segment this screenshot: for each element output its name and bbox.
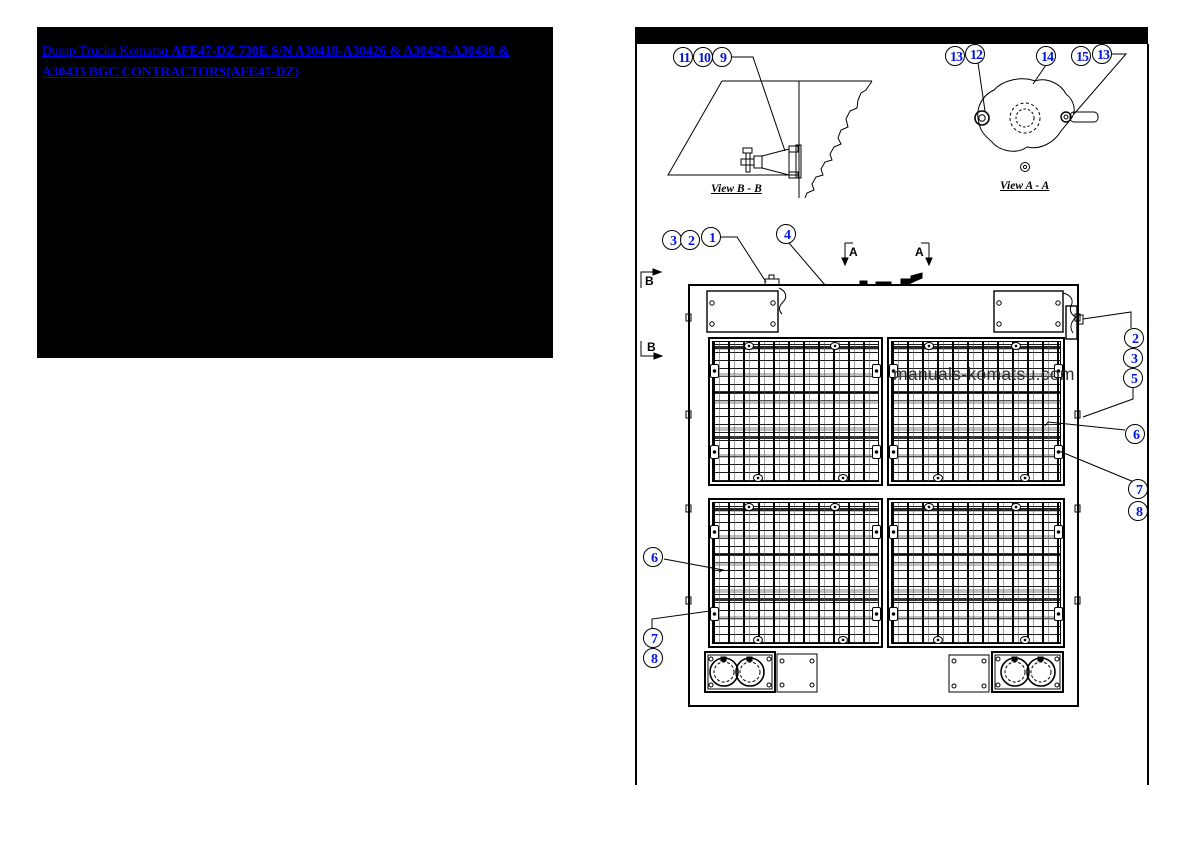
- panel-clip: [1054, 525, 1063, 539]
- callout-13: 13: [1092, 44, 1112, 64]
- panel-clip: [710, 607, 719, 621]
- core-panel-bottom-right: [887, 498, 1065, 648]
- panel-clip: [1054, 607, 1063, 621]
- callout-5: 5: [1123, 368, 1143, 388]
- callout-15: 15: [1071, 46, 1091, 66]
- panel-fastener: [830, 342, 840, 350]
- callout-7: 7: [643, 628, 663, 648]
- diagram-left-border: [635, 27, 637, 785]
- panel-clip: [889, 607, 898, 621]
- callout-12: 12: [965, 44, 985, 64]
- callout-11: 11: [673, 47, 693, 67]
- panel-clip: [889, 445, 898, 459]
- callout-6: 6: [1125, 424, 1145, 444]
- callout-13: 13: [945, 46, 965, 66]
- core-grid: [891, 502, 1061, 644]
- callout-8: 8: [1128, 501, 1148, 521]
- diagram-top-bar: [636, 27, 1148, 44]
- callout-9: 9: [712, 47, 732, 67]
- panel-fastener: [924, 503, 934, 511]
- panel-fastener: [753, 474, 763, 482]
- panel-fastener: [933, 474, 943, 482]
- view-bb-label: View B - B: [711, 183, 762, 195]
- panel-fastener: [933, 636, 943, 644]
- callout-1: 1: [701, 227, 721, 247]
- panel-fastener: [838, 474, 848, 482]
- callout-14: 14: [1036, 46, 1056, 66]
- section-letter-a-left: A: [849, 246, 858, 258]
- section-letter-a-right: A: [915, 246, 924, 258]
- core-grid: [712, 502, 879, 644]
- callout-3: 3: [662, 230, 682, 250]
- panel-clip: [872, 364, 881, 378]
- core-grid: [891, 341, 1061, 482]
- core-grid: [712, 341, 879, 482]
- view-bb-drawing: [668, 57, 872, 198]
- breadcrumb-link-category[interactable]: Dump Trucks Komatsu: [42, 43, 171, 58]
- core-panel-bottom-left: [708, 498, 883, 648]
- panel-clip: [872, 525, 881, 539]
- panel-fastener: [830, 503, 840, 511]
- core-panel-top-right: [887, 337, 1065, 486]
- breadcrumb-panel: Dump Trucks Komatsu AFE47-DZ 730E S/N A3…: [37, 27, 553, 358]
- panel-clip: [710, 445, 719, 459]
- diagram-right-border: [1147, 44, 1149, 785]
- panel-fastener: [1020, 474, 1030, 482]
- panel-fastener: [838, 636, 848, 644]
- watermark-text: manuals-komatsu.com: [893, 364, 1075, 385]
- panel-clip: [889, 525, 898, 539]
- section-letter-b-top: B: [645, 275, 654, 287]
- callout-10: 10: [693, 47, 713, 67]
- panel-fastener: [1020, 636, 1030, 644]
- callout-6: 6: [643, 547, 663, 567]
- panel-fastener: [1011, 503, 1021, 511]
- panel-clip: [710, 525, 719, 539]
- core-panel-top-left: [708, 337, 883, 486]
- callout-4: 4: [776, 224, 796, 244]
- panel-clip: [872, 445, 881, 459]
- view-aa-label: View A - A: [1000, 180, 1049, 192]
- section-letter-b-bottom: B: [647, 341, 656, 353]
- panel-clip: [872, 607, 881, 621]
- callout-2: 2: [1124, 328, 1144, 348]
- callout-2: 2: [680, 230, 700, 250]
- panel-clip: [1054, 445, 1063, 459]
- callout-7: 7: [1128, 479, 1148, 499]
- callout-3: 3: [1123, 348, 1143, 368]
- panel-fastener: [924, 342, 934, 350]
- panel-fastener: [744, 342, 754, 350]
- panel-fastener: [1011, 342, 1021, 350]
- panel-clip: [710, 364, 719, 378]
- callout-8: 8: [643, 648, 663, 668]
- view-aa-drawing: [975, 54, 1126, 172]
- panel-fastener: [753, 636, 763, 644]
